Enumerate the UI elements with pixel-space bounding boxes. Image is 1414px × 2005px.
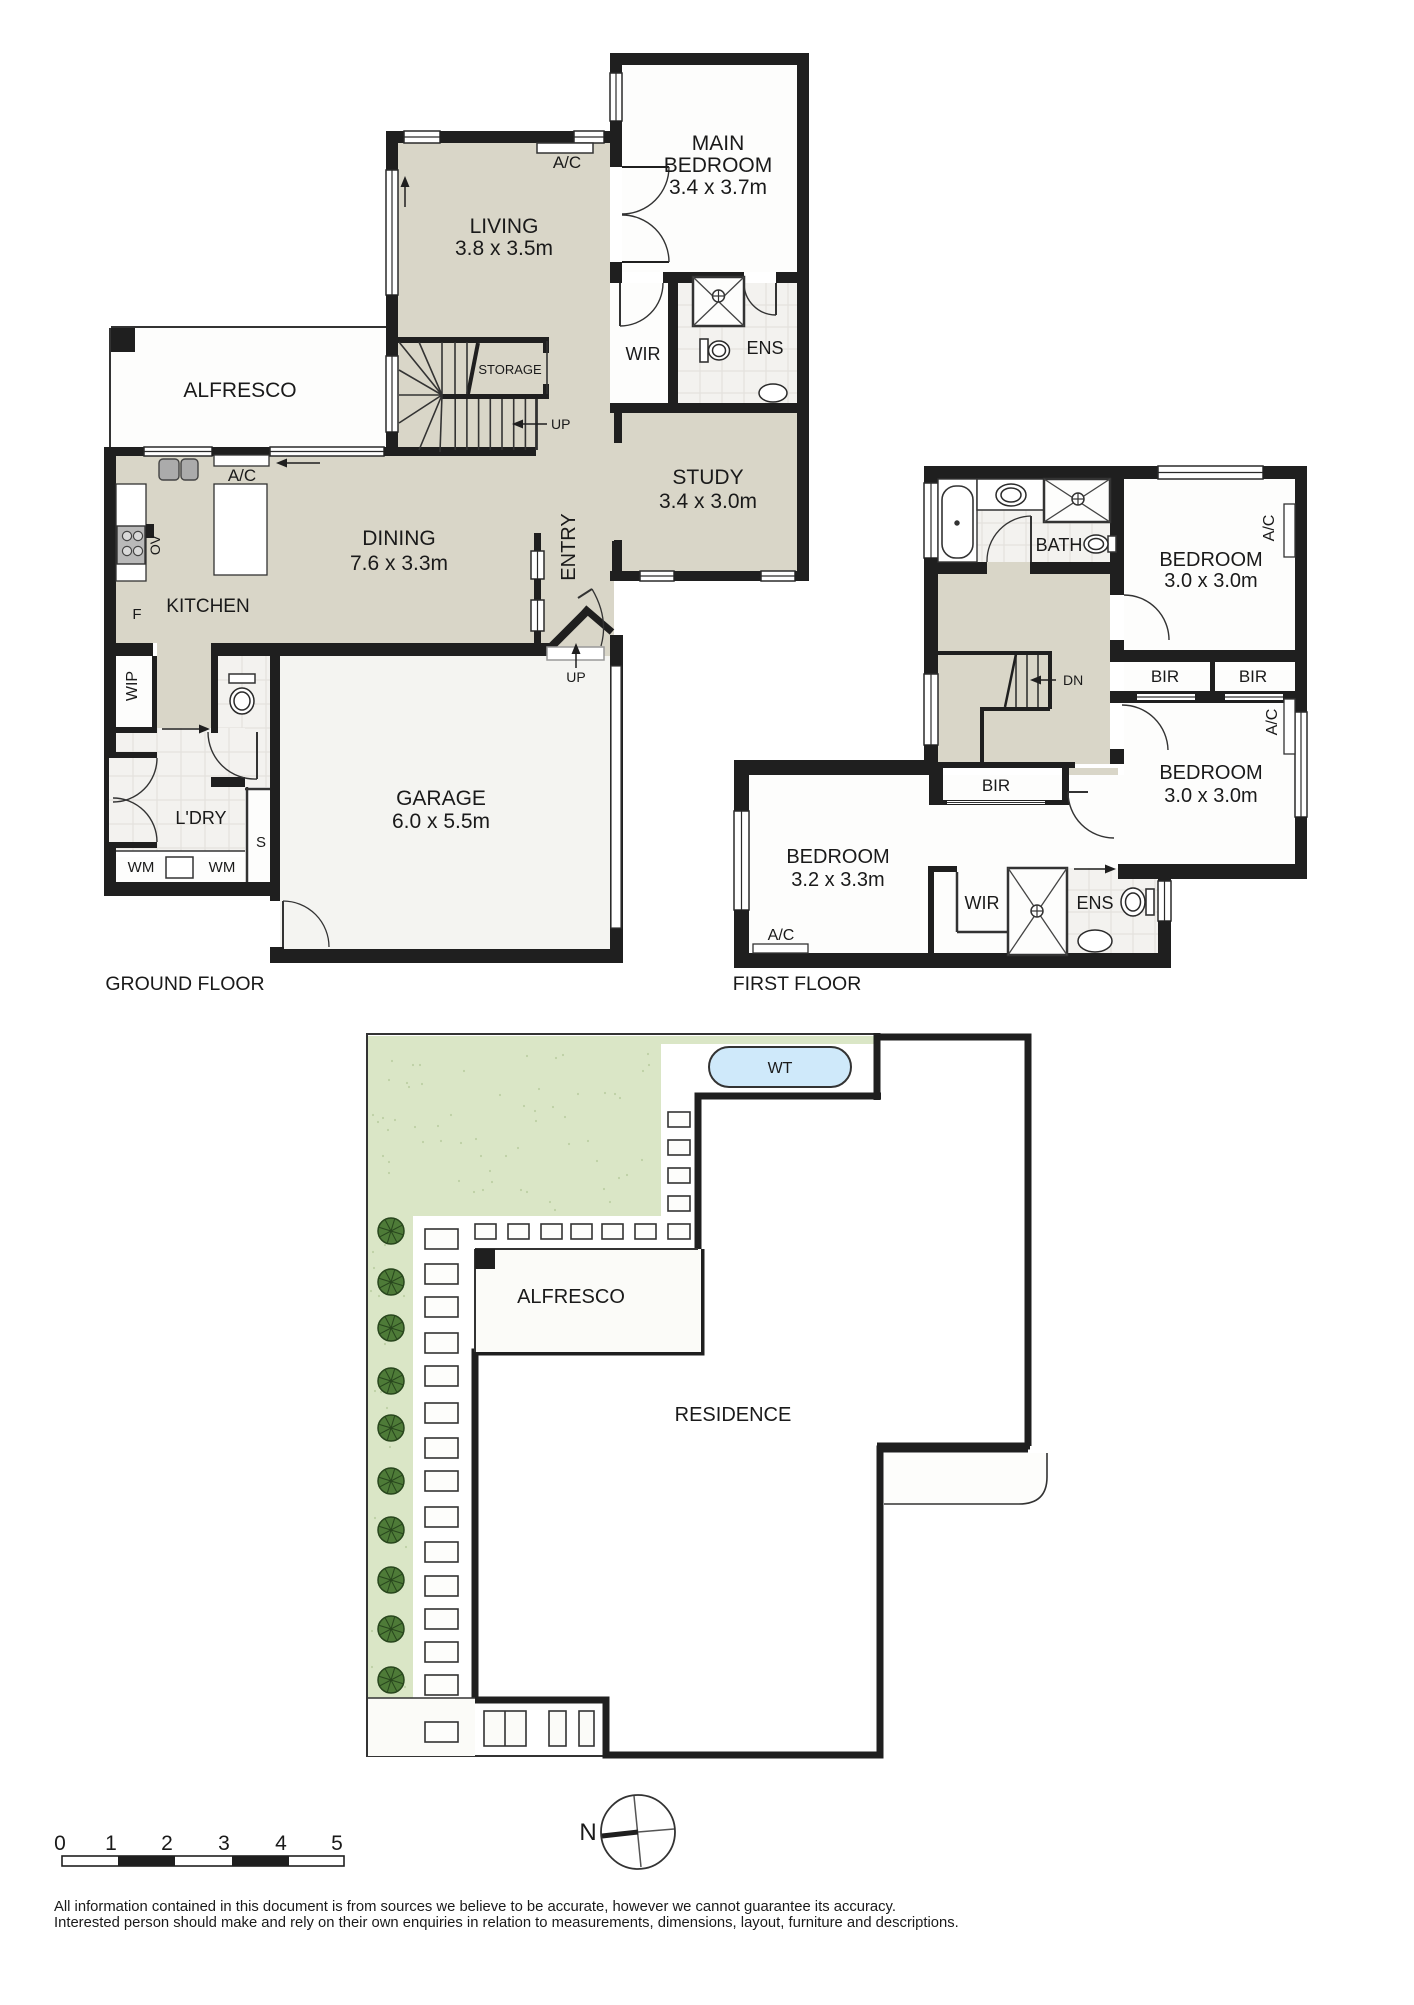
svg-text:BIR: BIR <box>1239 667 1267 686</box>
svg-text:Interested person should make: Interested person should make and rely o… <box>54 1915 959 1931</box>
svg-text:WIR: WIR <box>626 344 661 364</box>
svg-text:ENS: ENS <box>746 338 783 358</box>
svg-text:3: 3 <box>218 1832 230 1855</box>
svg-text:ENS: ENS <box>1076 893 1113 913</box>
svg-text:2: 2 <box>161 1832 173 1855</box>
svg-text:ALFRESCO: ALFRESCO <box>517 1286 625 1308</box>
svg-text:STUDY: STUDY <box>672 466 743 489</box>
svg-text:FIRST FLOOR: FIRST FLOOR <box>733 973 862 995</box>
svg-text:UP: UP <box>551 416 570 432</box>
svg-text:A/C: A/C <box>228 466 256 485</box>
svg-text:1: 1 <box>105 1832 117 1855</box>
svg-text:BEDROOM: BEDROOM <box>1159 549 1262 571</box>
svg-text:3.4 x 3.0m: 3.4 x 3.0m <box>659 490 757 513</box>
svg-text:BEDROOM: BEDROOM <box>664 154 773 177</box>
svg-text:3.0 x 3.0m: 3.0 x 3.0m <box>1164 570 1257 592</box>
svg-text:S: S <box>256 834 266 851</box>
svg-text:BIR: BIR <box>1151 667 1179 686</box>
svg-text:3.0 x 3.0m: 3.0 x 3.0m <box>1164 785 1257 807</box>
svg-text:WM: WM <box>209 859 236 876</box>
svg-text:N: N <box>579 1819 596 1846</box>
svg-text:A/C: A/C <box>553 153 581 172</box>
svg-text:WT: WT <box>768 1060 793 1077</box>
svg-text:6.0 x 5.5m: 6.0 x 5.5m <box>392 810 490 833</box>
svg-text:WIR: WIR <box>965 893 1000 913</box>
svg-text:OV: OV <box>147 534 163 555</box>
svg-text:DINING: DINING <box>362 527 436 550</box>
svg-text:GROUND FLOOR: GROUND FLOOR <box>105 973 264 995</box>
svg-text:ALFRESCO: ALFRESCO <box>183 379 296 402</box>
svg-text:UP: UP <box>566 669 585 685</box>
svg-text:KITCHEN: KITCHEN <box>166 596 249 617</box>
svg-text:ENTRY: ENTRY <box>558 513 580 580</box>
svg-text:A/C: A/C <box>1261 515 1278 542</box>
svg-text:L'DRY: L'DRY <box>175 808 226 828</box>
svg-text:All information contained in t: All information contained in this docume… <box>54 1899 896 1915</box>
svg-text:WIP: WIP <box>124 671 141 701</box>
svg-text:BIR: BIR <box>982 776 1010 795</box>
svg-text:3.4 x 3.7m: 3.4 x 3.7m <box>669 176 767 199</box>
svg-text:LIVING: LIVING <box>470 215 539 238</box>
svg-text:A/C: A/C <box>1264 709 1281 736</box>
svg-text:MAIN: MAIN <box>692 132 745 155</box>
svg-text:0: 0 <box>54 1832 66 1855</box>
svg-text:BEDROOM: BEDROOM <box>786 846 889 868</box>
svg-text:STORAGE: STORAGE <box>478 362 542 377</box>
svg-text:DN: DN <box>1063 672 1083 688</box>
svg-text:4: 4 <box>275 1832 287 1855</box>
svg-text:3.8 x 3.5m: 3.8 x 3.5m <box>455 237 553 260</box>
svg-text:BATH: BATH <box>1036 535 1083 555</box>
svg-text:3.2 x 3.3m: 3.2 x 3.3m <box>791 869 884 891</box>
svg-text:A/C: A/C <box>768 927 795 944</box>
svg-text:5: 5 <box>331 1832 343 1855</box>
svg-text:BEDROOM: BEDROOM <box>1159 762 1262 784</box>
svg-text:WM: WM <box>128 859 155 876</box>
svg-text:7.6 x 3.3m: 7.6 x 3.3m <box>350 552 448 575</box>
svg-text:F: F <box>132 606 141 623</box>
svg-text:GARAGE: GARAGE <box>396 787 486 810</box>
svg-text:RESIDENCE: RESIDENCE <box>675 1404 792 1426</box>
